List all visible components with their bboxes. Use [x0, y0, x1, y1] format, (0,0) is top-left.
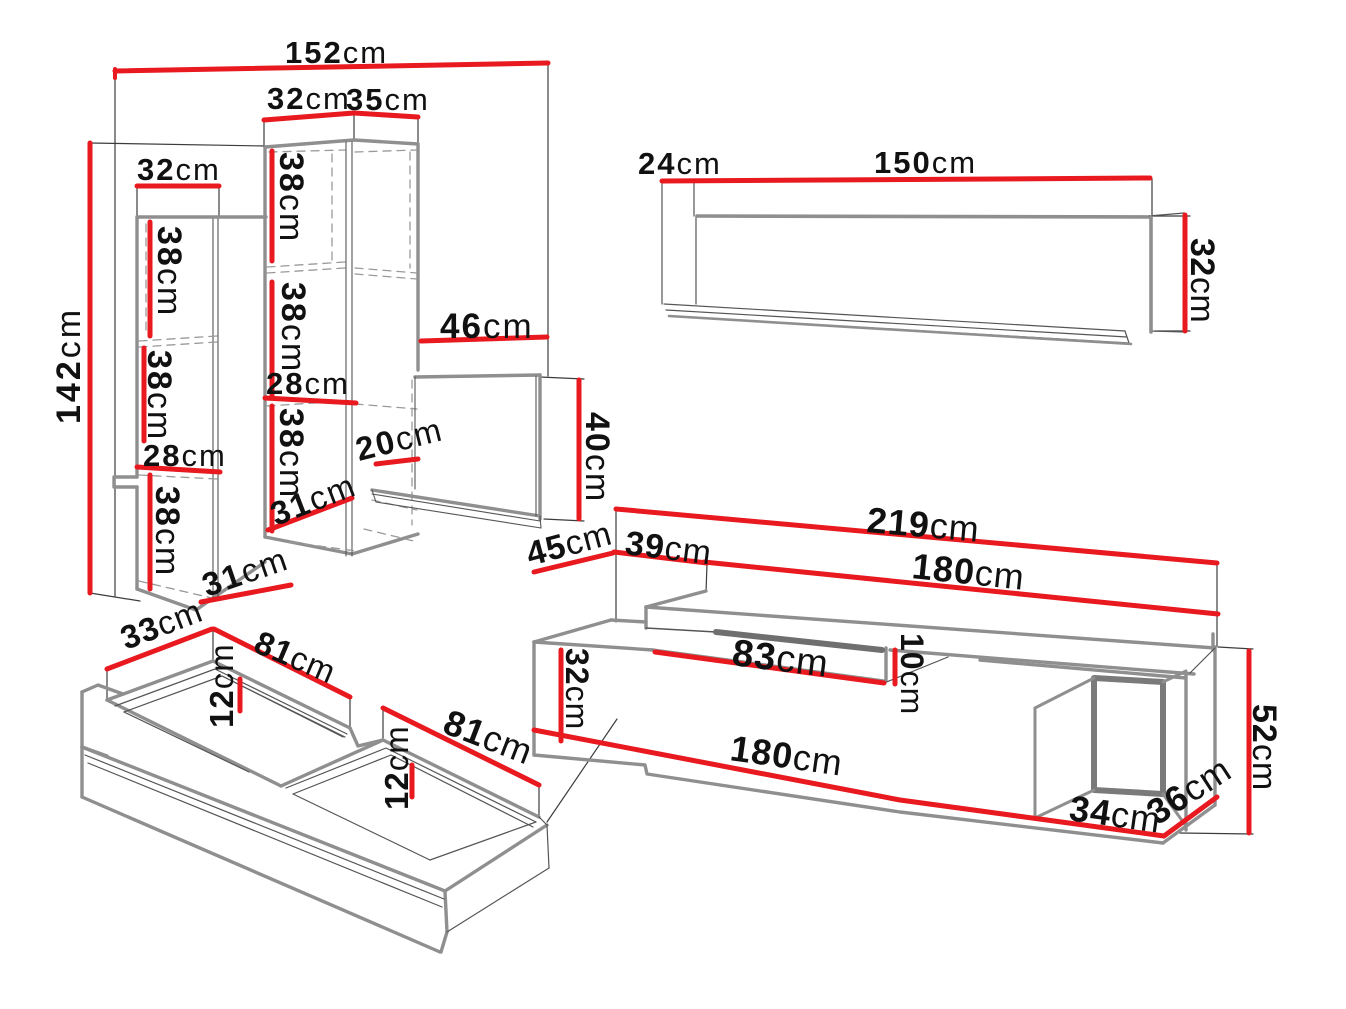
svg-text:52cm: 52cm: [1245, 704, 1283, 791]
svg-text:28cm: 28cm: [266, 366, 350, 401]
svg-text:38cm: 38cm: [150, 226, 188, 317]
svg-text:28cm: 28cm: [143, 438, 227, 473]
svg-text:12cm: 12cm: [203, 643, 240, 728]
svg-text:40cm: 40cm: [578, 412, 616, 503]
svg-text:142cm: 142cm: [50, 307, 88, 424]
svg-text:32cm: 32cm: [559, 648, 595, 730]
svg-text:12cm: 12cm: [378, 725, 415, 810]
svg-text:35cm: 35cm: [346, 82, 430, 117]
svg-text:10cm: 10cm: [894, 633, 930, 715]
svg-text:38cm: 38cm: [140, 350, 178, 441]
svg-text:38cm: 38cm: [148, 486, 186, 577]
svg-text:38cm: 38cm: [272, 152, 310, 243]
svg-text:24cm: 24cm: [638, 146, 722, 181]
svg-text:32cm: 32cm: [1183, 238, 1221, 323]
svg-text:150cm: 150cm: [874, 145, 977, 180]
svg-text:46cm: 46cm: [440, 307, 534, 346]
svg-text:152cm: 152cm: [285, 35, 388, 70]
svg-text:32cm: 32cm: [267, 81, 351, 116]
svg-text:32cm: 32cm: [137, 152, 221, 187]
svg-text:38cm: 38cm: [274, 282, 312, 373]
